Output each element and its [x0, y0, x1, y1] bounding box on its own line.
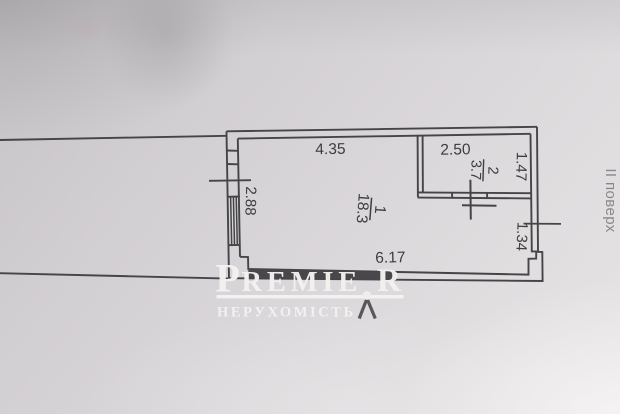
svg-text:P: P	[216, 255, 240, 300]
svg-text:4.35: 4.35	[315, 141, 345, 158]
svg-text:3.7: 3.7	[467, 160, 484, 181]
svg-text:REMIE: REMIE	[242, 267, 363, 298]
svg-text:R: R	[377, 263, 402, 299]
svg-text:18.3: 18.3	[353, 193, 372, 224]
svg-text:1.34: 1.34	[512, 222, 530, 252]
svg-text:2.50: 2.50	[440, 141, 471, 158]
svg-text:2: 2	[484, 166, 500, 175]
svg-text:1: 1	[371, 205, 389, 215]
svg-text:НЕРУХОМІСТЬ: НЕРУХОМІСТЬ	[217, 304, 356, 320]
svg-text:2.88: 2.88	[241, 186, 259, 216]
svg-text:1.47: 1.47	[512, 152, 530, 182]
svg-text:ІІ поверх: ІІ поверх	[602, 168, 619, 232]
